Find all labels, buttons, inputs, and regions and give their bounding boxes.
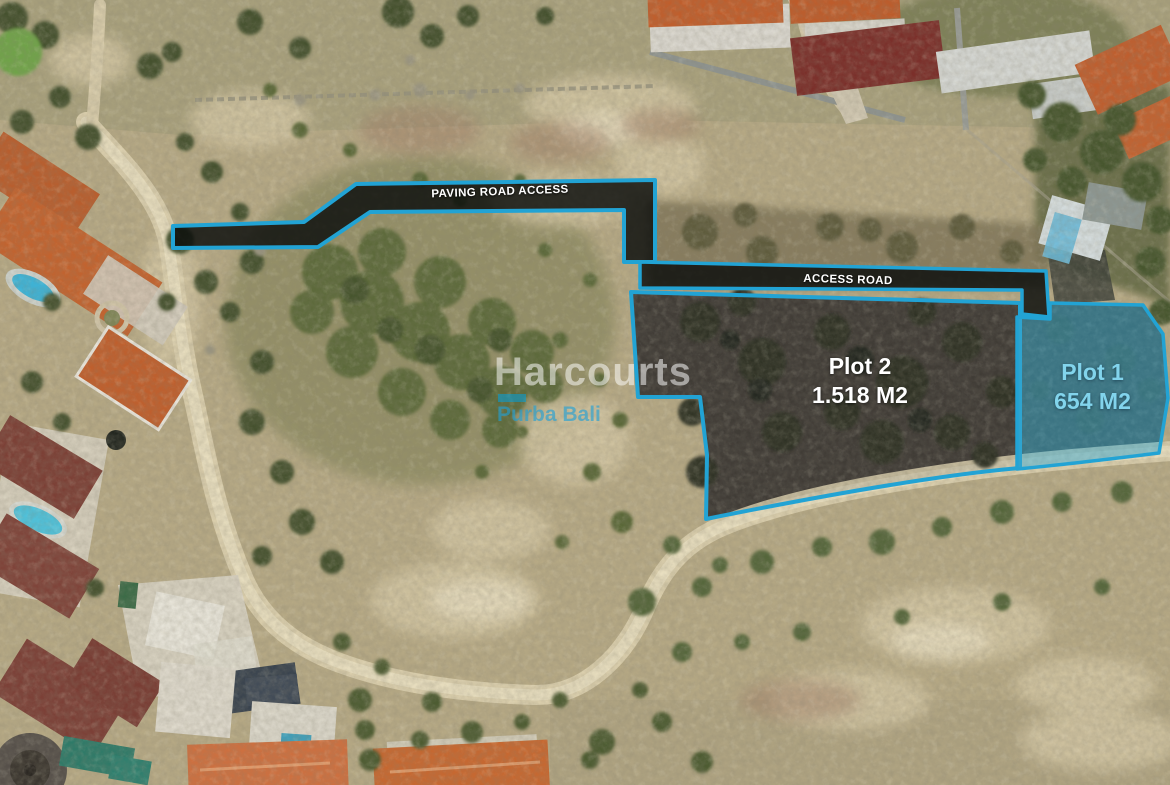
plot1-label: Plot 1 654 M2	[1020, 358, 1165, 416]
plot2-label: Plot 2 1.518 M2	[790, 352, 930, 410]
terrain-art	[0, 0, 1170, 785]
aerial-photo: PAVING ROAD ACCESS ACCESS ROAD Plot 2 1.…	[0, 0, 1170, 785]
plot1-area: 654 M2	[1020, 387, 1165, 416]
plot2-name: Plot 2	[790, 352, 930, 381]
plot1-name: Plot 1	[1020, 358, 1165, 387]
plot2-area: 1.518 M2	[790, 381, 930, 410]
